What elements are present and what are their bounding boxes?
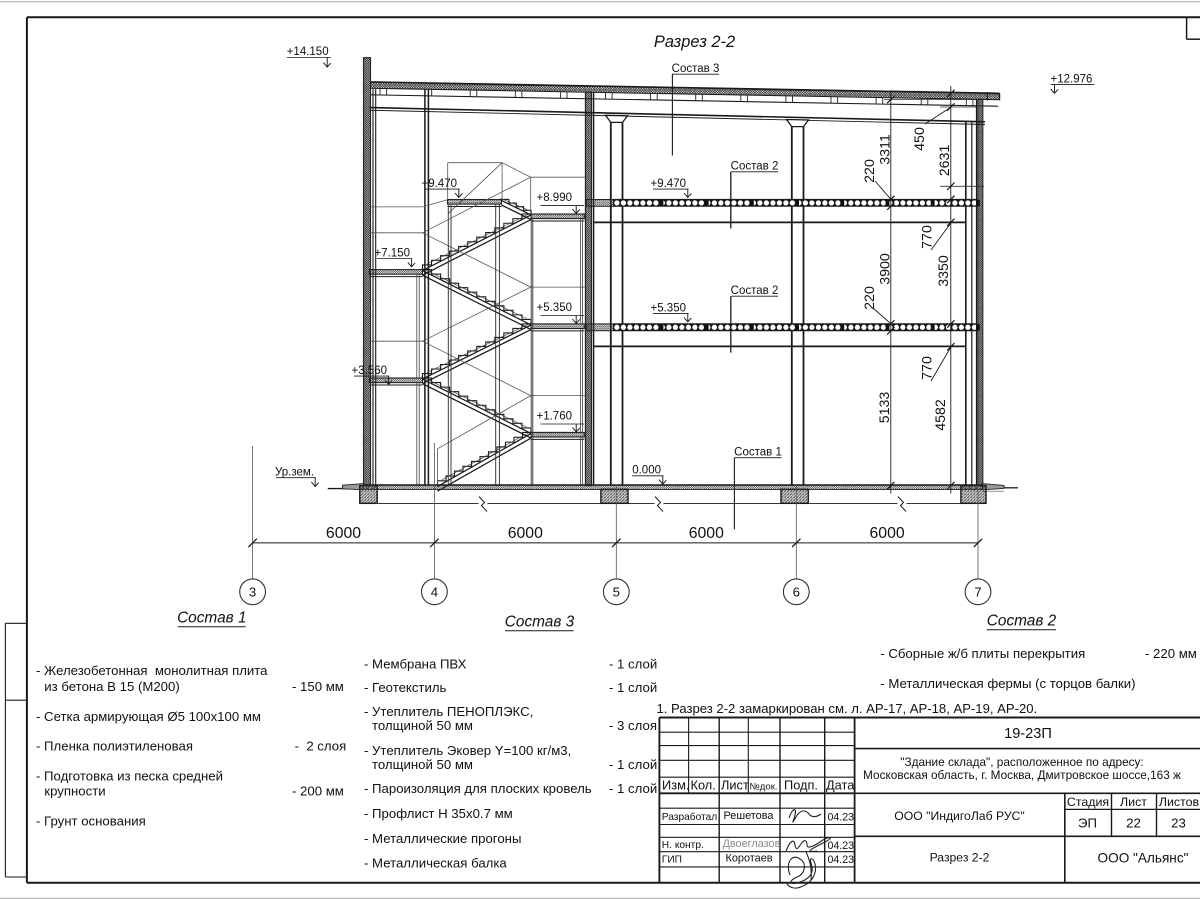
svg-text:5133: 5133 (877, 392, 893, 424)
svg-text:Состав 2: Состав 2 (731, 161, 779, 173)
svg-text:Состав 3: Состав 3 (672, 63, 720, 75)
svg-text:220: 220 (862, 286, 878, 310)
svg-text:22: 22 (1126, 816, 1141, 831)
svg-text:6: 6 (793, 584, 800, 599)
svg-text:+8.990: +8.990 (537, 192, 573, 204)
svg-text:Стадия: Стадия (1067, 795, 1109, 809)
svg-text:+7.150: +7.150 (375, 247, 411, 259)
svg-text:6000: 6000 (689, 525, 724, 542)
svg-text:Решетова: Решетова (724, 810, 775, 822)
svg-text:Состав 1: Состав 1 (177, 610, 246, 627)
svg-text:Дата: Дата (826, 778, 855, 793)
svg-text:ГИП: ГИП (662, 854, 682, 865)
svg-text:Разработал: Разработал (662, 811, 718, 823)
svg-text:- Профлист Н 35х0.7 мм: - Профлист Н 35х0.7 мм (364, 806, 513, 821)
svg-text:- Пленка полиэтиленовая: - Пленка полиэтиленовая (36, 739, 193, 754)
svg-text:- 1 слой: - 1 слой (609, 680, 657, 695)
svg-text:Разрез 2-2: Разрез 2-2 (930, 851, 990, 865)
svg-text:3900: 3900 (878, 253, 894, 285)
svg-text:- 3 слоя: - 3 слоя (609, 718, 657, 733)
svg-text:+1.760: +1.760 (537, 411, 573, 423)
svg-text:- 1 слой: - 1 слой (609, 781, 657, 796)
svg-text:23: 23 (1171, 816, 1186, 831)
svg-text:- 2 слоя: - 2 слоя (295, 739, 347, 754)
svg-text:- Металлические прогоны: - Металлические прогоны (364, 831, 521, 846)
svg-text:Изм.: Изм. (662, 778, 689, 793)
svg-text:+3.560: +3.560 (352, 365, 388, 377)
svg-text:Разрез 2-2: Разрез 2-2 (654, 33, 735, 51)
svg-text:- Утеплитель Эковер Y=100 кг/м: - Утеплитель Эковер Y=100 кг/м3, (364, 743, 571, 758)
svg-text:- Сборные ж/б плиты перекрытия: - Сборные ж/б плиты перекрытия (880, 646, 1085, 661)
svg-text:+9.470: +9.470 (422, 178, 458, 190)
svg-text:- Грунт основания: - Грунт основания (36, 814, 146, 829)
svg-text:- 1 слой: - 1 слой (609, 757, 657, 772)
svg-text:- Железобетонная монолитная п: - Железобетонная монолитная плита (36, 663, 268, 678)
svg-text:- Мембрана ПВХ: - Мембрана ПВХ (364, 657, 467, 672)
svg-text:+14.150: +14.150 (287, 46, 329, 58)
svg-text:Н. контр.: Н. контр. (662, 840, 704, 851)
svg-text:Лист: Лист (1120, 795, 1147, 809)
svg-text:Листов: Листов (1159, 795, 1200, 809)
svg-text:Лист: Лист (721, 778, 749, 793)
svg-text:Состав 2: Состав 2 (987, 613, 1057, 630)
svg-text:3350: 3350 (936, 255, 952, 287)
svg-text:- Пароизоляция для плоских кро: - Пароизоляция для плоских кровель (364, 781, 592, 796)
svg-text:Подп.: Подп. (784, 778, 818, 793)
svg-text:04.23: 04.23 (828, 812, 855, 824)
svg-text:+12.976: +12.976 (1051, 73, 1093, 85)
svg-text:+5.350: +5.350 (537, 302, 573, 314)
svg-text:Московская область, г. Москва,: Московская область, г. Москва, Дмитровск… (863, 768, 1181, 782)
svg-text:- Металлическая фермы (с торцо: - Металлическая фермы (с торцов балки) (880, 676, 1135, 691)
svg-text:0.000: 0.000 (632, 465, 661, 477)
svg-text:- Металлическая балка: - Металлическая балка (364, 856, 507, 871)
svg-text:- Подготовка из песка средней: - Подготовка из песка средней (36, 769, 223, 784)
svg-text:04.23: 04.23 (828, 854, 855, 866)
svg-text:450: 450 (912, 127, 928, 151)
svg-text:04.23: 04.23 (828, 840, 855, 852)
svg-text:толщиной 50 мм: толщиной 50 мм (372, 757, 473, 772)
svg-text:+9.470: +9.470 (651, 178, 687, 190)
svg-text:Кол.: Кол. (691, 778, 716, 793)
svg-text:- 200 мм: - 200 мм (292, 784, 344, 799)
svg-text:4582: 4582 (933, 399, 949, 431)
svg-text:Состав 3: Состав 3 (505, 614, 575, 631)
svg-text:- Утеплитель ПЕНОПЛЭКС,: - Утеплитель ПЕНОПЛЭКС, (364, 704, 533, 719)
svg-text:Состав 1: Состав 1 (734, 446, 782, 458)
svg-text:толщиной 50 мм: толщиной 50 мм (372, 718, 473, 733)
svg-text:19-23П: 19-23П (1004, 726, 1052, 742)
svg-text:1. Разрез 2-2 замаркирован см.: 1. Разрез 2-2 замаркирован см. л. АР-17,… (657, 701, 1038, 716)
svg-text:Ур.зем.: Ур.зем. (275, 466, 314, 478)
svg-text:- Сетка армирующая Ø5 100х100: - Сетка армирующая Ø5 100х100 мм (36, 709, 261, 724)
svg-text:Коротаев: Коротаев (726, 853, 773, 865)
svg-text:Двоеглазов: Двоеглазов (723, 838, 781, 850)
svg-text:- 220 мм: - 220 мм (1145, 646, 1197, 661)
svg-text:2631: 2631 (937, 145, 953, 177)
svg-text:+5.350: +5.350 (651, 302, 687, 314)
svg-text:- 150 мм: - 150 мм (292, 679, 344, 694)
svg-text:№док.: №док. (750, 781, 778, 792)
svg-text:3311: 3311 (878, 134, 894, 165)
svg-text:4: 4 (431, 584, 438, 599)
svg-text:Состав 2: Состав 2 (731, 285, 779, 297)
svg-text:6000: 6000 (508, 525, 543, 542)
svg-text:7: 7 (974, 584, 981, 599)
svg-text:ООО "ИндигоЛаб РУС": ООО "ИндигоЛаб РУС" (894, 809, 1024, 823)
svg-text:770: 770 (920, 225, 936, 249)
svg-text:- Геотекстиль: - Геотекстиль (364, 680, 447, 695)
svg-text:6000: 6000 (326, 525, 361, 542)
svg-text:220: 220 (862, 159, 878, 183)
svg-text:крупности: крупности (44, 784, 105, 799)
svg-text:6000: 6000 (870, 525, 905, 542)
svg-text:- 1 слой: - 1 слой (609, 657, 657, 672)
svg-text:3: 3 (249, 584, 256, 599)
svg-text:5: 5 (613, 584, 620, 599)
svg-text:ООО "Альянс": ООО "Альянс" (1098, 851, 1189, 866)
svg-text:"Здание склада", расположенное: "Здание склада", расположенное по адресу… (900, 755, 1143, 769)
svg-text:770: 770 (920, 356, 936, 380)
svg-text:ЭП: ЭП (1078, 816, 1097, 831)
svg-text:из бетона В 15 (М200): из бетона В 15 (М200) (44, 679, 179, 694)
